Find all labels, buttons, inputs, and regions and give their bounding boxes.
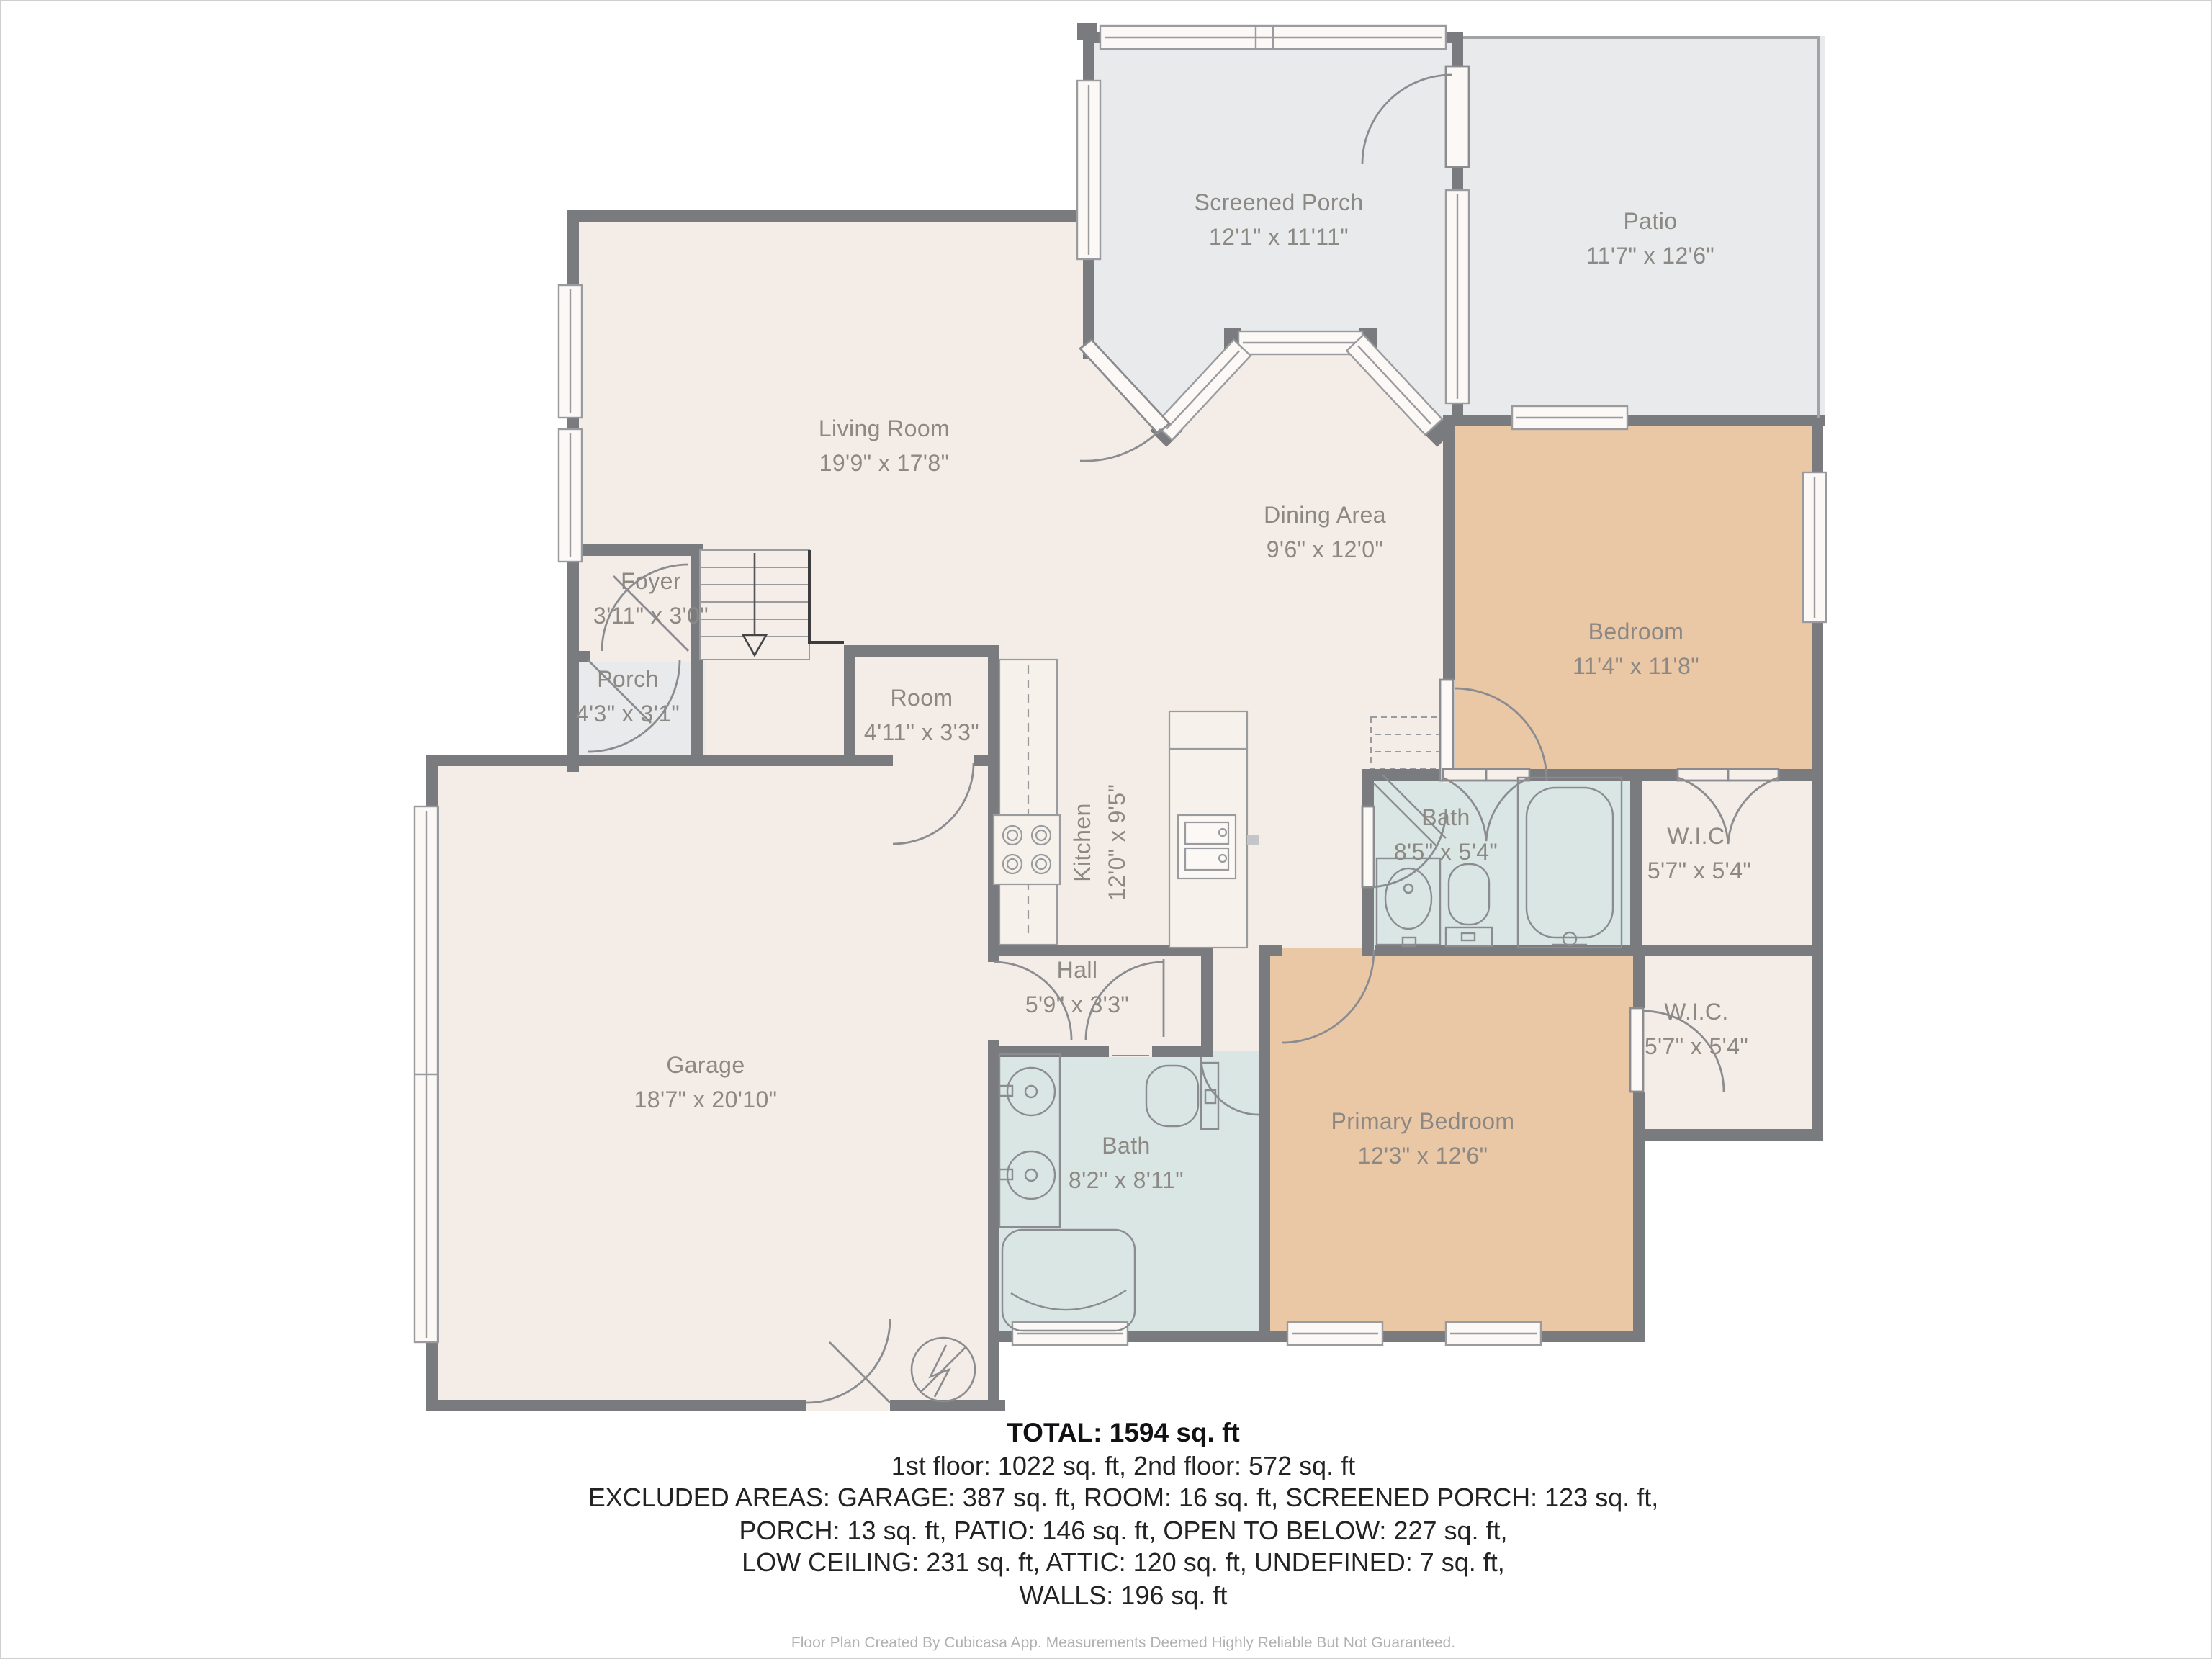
window-bath2 [1012, 1322, 1128, 1345]
window-porch-patio [1446, 190, 1469, 403]
window-primary-1 [1287, 1322, 1382, 1345]
room-label-room: Room4'11" x 3'3" [864, 683, 979, 752]
room-label-bath-2: Bath8'2" x 8'11" [1069, 1130, 1184, 1200]
room-label-bath-1: Bath8'5" x 5'4" [1394, 802, 1498, 871]
room-label-garage: Garage18'7" x 20'10" [634, 1050, 778, 1119]
room-label-primary-bedroom: Primary Bedroom12'3" x 12'6" [1331, 1106, 1515, 1175]
room-label-kitchen: Kitchen12'0" x 9'5" [1067, 784, 1136, 902]
excluded-line-2: PORCH: 13 sq. ft, PATIO: 146 sq. ft, OPE… [35, 1514, 2212, 1547]
excluded-line-1: EXCLUDED AREAS: GARAGE: 387 sq. ft, ROOM… [35, 1482, 2212, 1514]
patio-door-leaf [1446, 66, 1469, 167]
room-label-wic-1: W.I.C.5'7" x 5'4" [1647, 821, 1751, 890]
area-summary: TOTAL: 1594 sq. ft 1st floor: 1022 sq. f… [35, 1417, 2212, 1611]
room-label-dining-area: Dining Area9'6" x 12'0" [1264, 500, 1386, 569]
window-garage [415, 806, 438, 1342]
room-door-threshold [893, 755, 974, 766]
wic2-door-leaf [1630, 1008, 1643, 1092]
closet-dashed [1371, 717, 1443, 769]
room-label-bedroom: Bedroom11'4" x 11'8" [1573, 616, 1699, 685]
hall-left-door-gap [988, 962, 999, 1040]
window-porch-screens [1100, 26, 1446, 49]
window-living-2 [559, 429, 582, 562]
front-door-threshold [590, 651, 691, 662]
wic1-bifold-leaf-1 [1678, 769, 1728, 781]
room-label-porch: Porch4'3" x 3'1" [576, 664, 680, 733]
window-bedroom-top [1512, 406, 1627, 429]
stove-icon [994, 815, 1060, 884]
room-label-hall: Hall5'9" x 3'3" [1025, 955, 1129, 1024]
bedroom-door-leaf [1440, 680, 1453, 781]
bath1-door-leaf [1362, 806, 1374, 887]
kitchen-island [1169, 711, 1259, 948]
window-bay-center [1238, 331, 1362, 354]
window-porch-left [1077, 81, 1100, 259]
room-label-screened-porch: Screened Porch12'1" x 11'11" [1194, 187, 1363, 256]
window-living-1 [559, 285, 582, 418]
wic1-bifold-leaf-2 [1728, 769, 1779, 781]
credit-line: Floor Plan Created By Cubicasa App. Meas… [35, 1633, 2212, 1653]
bath1-bifold-leaf-2 [1486, 769, 1529, 781]
room-label-wic-2: W.I.C.5'7" x 5'4" [1645, 997, 1748, 1066]
floorplan-canvas: Screened Porch12'1" x 11'11" Patio11'7" … [0, 0, 2212, 1659]
room-label-patio: Patio11'7" x 12'6" [1586, 206, 1714, 275]
window-bedroom-right [1803, 472, 1826, 622]
bath1-bifold-leaf-1 [1443, 769, 1486, 781]
excluded-line-4: WALLS: 196 sq. ft [35, 1579, 2212, 1611]
total-area-line: TOTAL: 1594 sq. ft [35, 1417, 2212, 1449]
room-label-living-room: Living Room19'9" x 17'8" [819, 413, 950, 482]
floors-line: 1st floor: 1022 sq. ft, 2nd floor: 572 s… [35, 1449, 2212, 1482]
room-label-foyer: Foyer3'11" x 3'0" [593, 566, 709, 635]
excluded-line-3: LOW CEILING: 231 sq. ft, ATTIC: 120 sq. … [35, 1547, 2212, 1579]
window-primary-2 [1446, 1322, 1541, 1345]
floorplan-page: Screened Porch12'1" x 11'11" Patio11'7" … [0, 0, 2212, 1659]
